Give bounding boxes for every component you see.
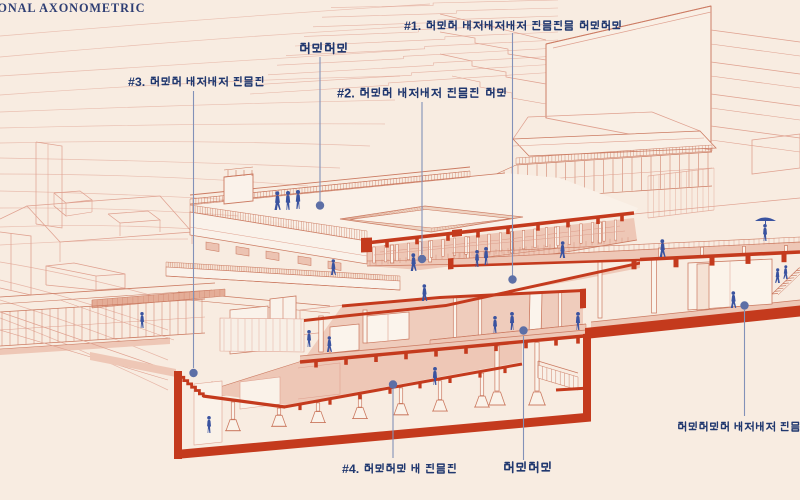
svg-text:#1.: #1.: [404, 19, 421, 33]
svg-text:#4.: #4.: [342, 462, 359, 476]
svg-text:SECTIONAL AXONOMETRIC: SECTIONAL AXONOMETRIC: [0, 1, 145, 15]
svg-text:#3.: #3.: [128, 75, 145, 89]
svg-text:#2.: #2.: [337, 86, 355, 101]
